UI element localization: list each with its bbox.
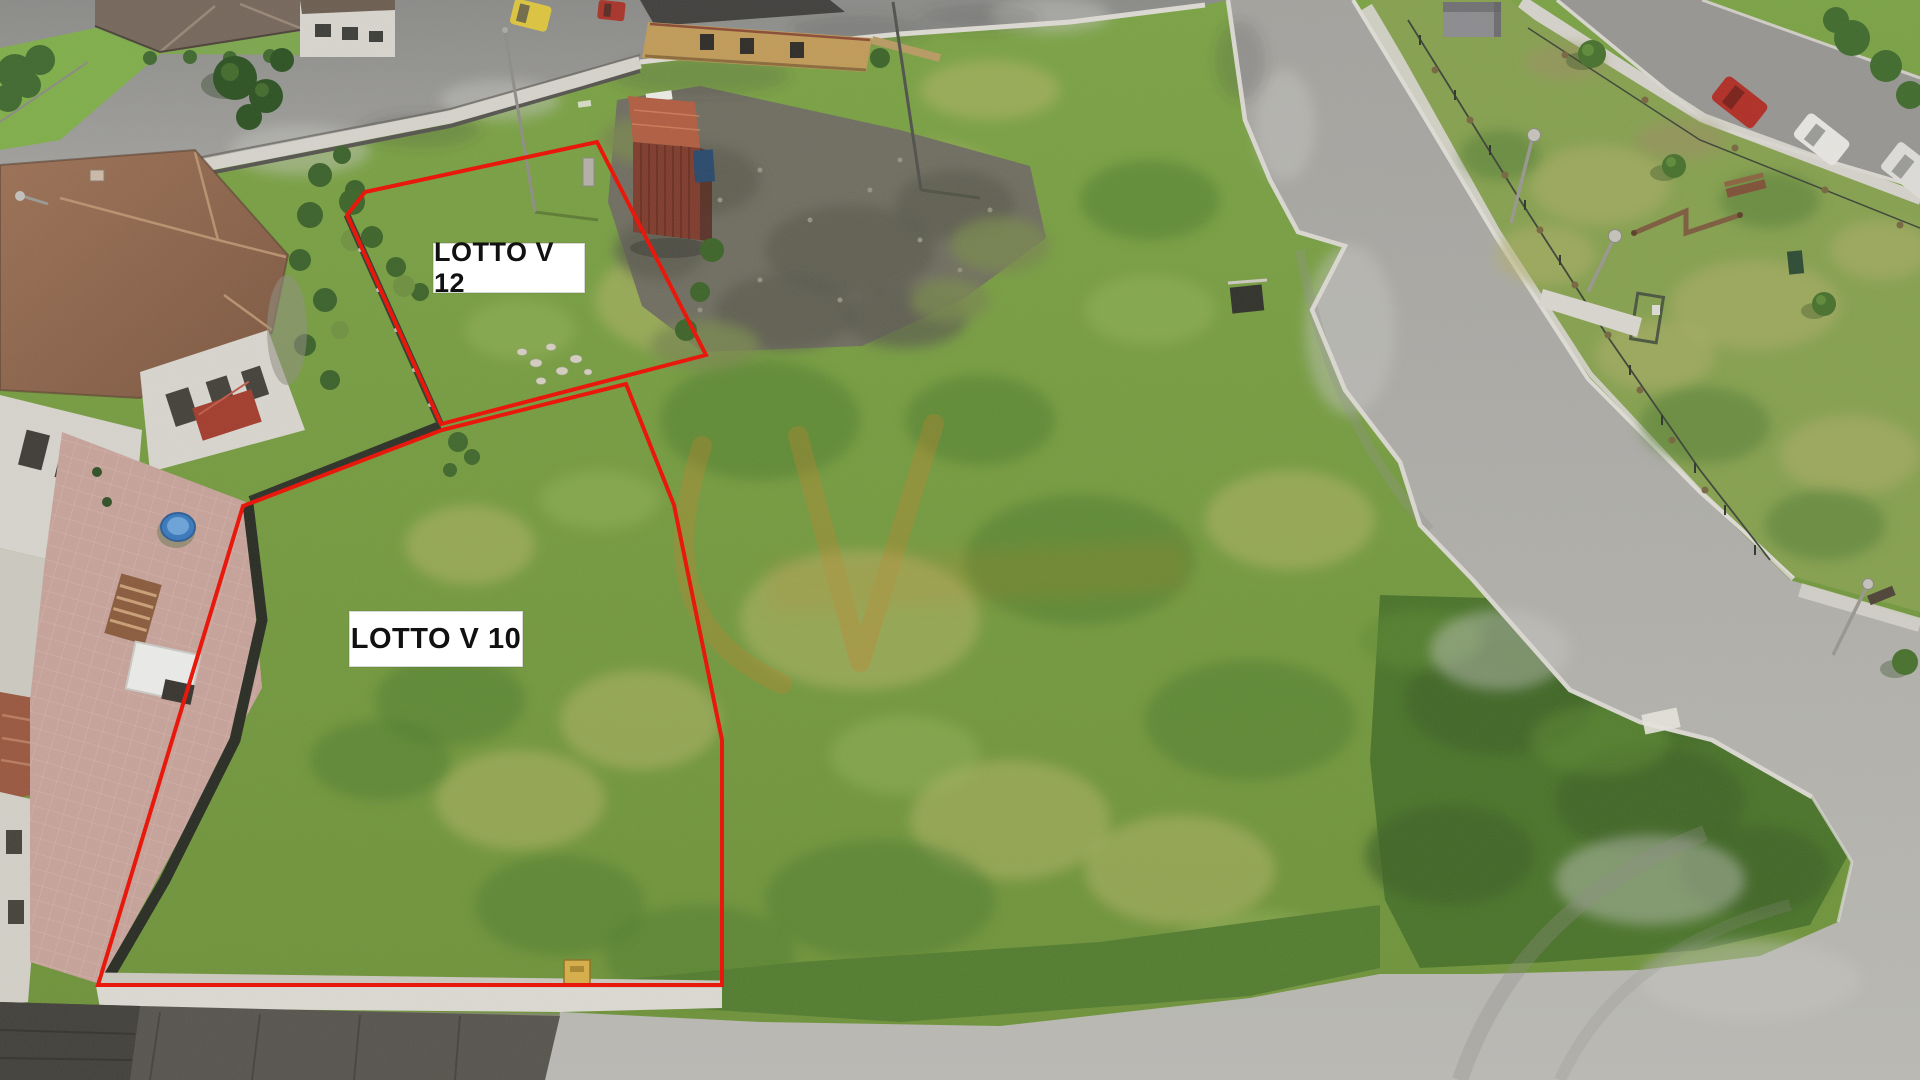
aerial-photo: LOTTO V 12 LOTTO V 10 — [0, 0, 1920, 1080]
lot-label-v12: LOTTO V 12 — [433, 243, 585, 293]
photo-grain — [0, 0, 1920, 1080]
aerial-photo-canvas — [0, 0, 1920, 1080]
lot-label-v10: LOTTO V 10 — [349, 611, 523, 667]
